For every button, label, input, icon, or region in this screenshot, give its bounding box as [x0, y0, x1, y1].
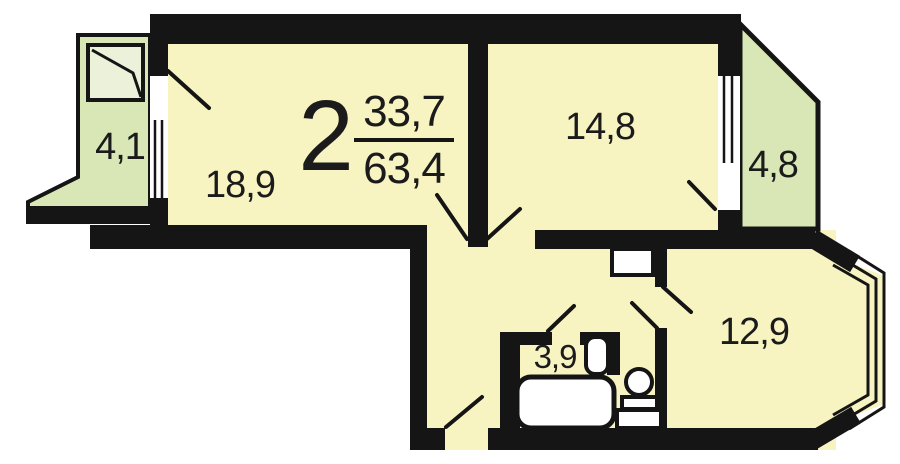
apartment-rooms-count: 2: [290, 86, 360, 186]
wall-right-lower: [718, 210, 740, 249]
sink: [586, 337, 608, 374]
wall-right-upper: [718, 44, 740, 76]
wall-left-lower: [150, 198, 168, 228]
bathtub: [517, 377, 614, 428]
floor-plan-drawing: [0, 0, 900, 464]
room-label-kitchen: 12,9: [699, 313, 809, 351]
cabinet: [612, 249, 653, 275]
wall-kitchen-top: [535, 230, 815, 249]
room-label-balcony-right: 4,8: [731, 146, 815, 184]
balcony-left-parapet: [28, 206, 152, 222]
floor-plan: 2 33,7 63,4 18,9 14,8 4,1 4,8 12,9 3,9: [0, 0, 900, 464]
wall-hall-left: [410, 249, 427, 450]
toilet-base: [617, 410, 661, 428]
area-fraction: 33,7 63,4: [352, 90, 456, 191]
room-label-living2: 14,8: [548, 108, 652, 146]
balcony-left-door-opening: [150, 76, 168, 120]
toilet-bowl: [626, 369, 652, 395]
wall-left-upper: [150, 14, 168, 76]
wall-kitchen-left-stub: [655, 247, 667, 287]
room-label-bathroom: 3,9: [522, 340, 588, 373]
wall-kitchen-left: [655, 328, 667, 450]
balcony-right: [740, 24, 818, 229]
wall-top: [152, 14, 741, 44]
room-label-balcony-left: 4,1: [78, 128, 162, 166]
toilet-pedestal: [622, 397, 657, 409]
total-area-value: 63,4: [352, 147, 456, 191]
fraction-bar: [354, 138, 454, 142]
room-label-living1: 18,9: [190, 166, 290, 204]
wall-bottom-left-stub: [410, 428, 445, 450]
wall-partition-center: [468, 44, 488, 247]
wall-room1-bottom: [90, 225, 427, 249]
living-area-value: 33,7: [352, 90, 456, 134]
wall-bottom: [488, 428, 818, 450]
